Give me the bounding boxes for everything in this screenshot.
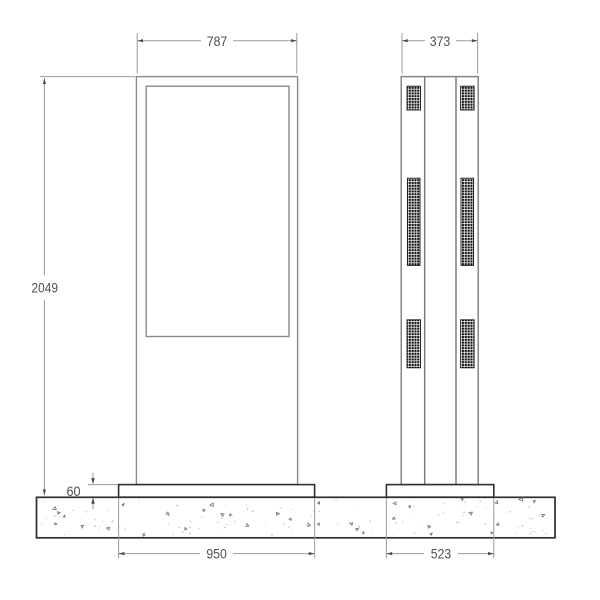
svg-text:60: 60 [67,484,81,500]
svg-text:2049: 2049 [32,281,59,297]
svg-text:373: 373 [430,34,451,50]
svg-text:523: 523 [431,547,452,563]
svg-text:787: 787 [207,34,228,50]
svg-text:950: 950 [206,547,227,563]
